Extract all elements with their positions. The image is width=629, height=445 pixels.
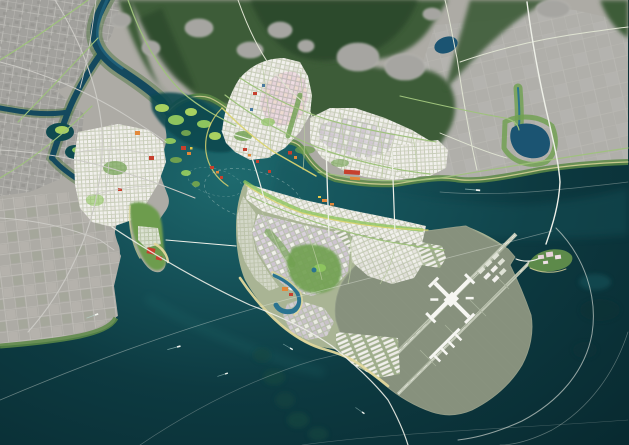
landmark-block xyxy=(253,92,257,95)
landmark-block xyxy=(268,170,271,173)
village-patch xyxy=(385,54,425,80)
village-patch xyxy=(111,13,131,27)
park-patch xyxy=(261,118,275,126)
landmark-block xyxy=(250,108,253,111)
landmark-block xyxy=(220,176,223,179)
landmark-block xyxy=(248,154,251,157)
landmark-block xyxy=(330,203,334,206)
resort-landmark xyxy=(289,293,293,296)
terminal-diag-arm xyxy=(466,297,474,300)
resort-landmark xyxy=(282,287,288,291)
bay-islet xyxy=(181,170,191,176)
park-patch xyxy=(103,161,127,175)
bay-islet xyxy=(192,181,200,187)
village-patch xyxy=(237,42,263,58)
landmark-block xyxy=(181,146,186,150)
eastern-grid-town xyxy=(390,140,448,176)
shoal-patch xyxy=(573,342,597,358)
landmark-block xyxy=(210,166,214,169)
marsh-islet xyxy=(185,108,197,116)
park-pond xyxy=(312,268,317,273)
shoal-patch xyxy=(275,392,295,408)
masterplan-map xyxy=(0,0,629,445)
landmark-block xyxy=(318,196,321,198)
marsh-islet xyxy=(209,132,221,140)
landmark-block xyxy=(288,151,292,155)
marsh-islet xyxy=(164,138,176,144)
landmark-block xyxy=(187,152,191,155)
landmark-block xyxy=(216,171,219,174)
landmark-block xyxy=(294,156,297,159)
island-building xyxy=(546,251,554,257)
landmark-block xyxy=(322,199,327,202)
shoal-patch xyxy=(308,427,328,441)
landmark-block xyxy=(190,147,193,150)
bay-islet xyxy=(170,157,182,163)
village-patch xyxy=(185,19,213,37)
marsh-islet xyxy=(168,115,184,125)
marsh-islet xyxy=(181,130,191,136)
village-patch xyxy=(536,0,570,18)
terminal-diag-arm xyxy=(430,298,438,301)
landmark-block xyxy=(256,160,259,163)
park-patch xyxy=(295,146,315,154)
village-patch xyxy=(298,40,314,52)
shoal-patch xyxy=(287,412,309,428)
village-patch xyxy=(337,43,379,71)
marsh-islet xyxy=(155,104,169,112)
masterplan-svg xyxy=(0,0,629,445)
village-patch xyxy=(423,8,441,20)
shoal-patch xyxy=(580,299,620,321)
island-building xyxy=(555,255,561,260)
park-patch xyxy=(331,159,349,167)
landmark-block xyxy=(262,84,265,87)
landmark-block xyxy=(243,148,247,151)
shoal-patch xyxy=(253,348,271,362)
shallow-tail xyxy=(579,274,611,290)
landmark-block xyxy=(149,156,154,160)
village-patch xyxy=(268,22,292,38)
boat-hull xyxy=(476,189,480,191)
landmark-block xyxy=(135,131,140,135)
village-patch xyxy=(142,41,160,55)
